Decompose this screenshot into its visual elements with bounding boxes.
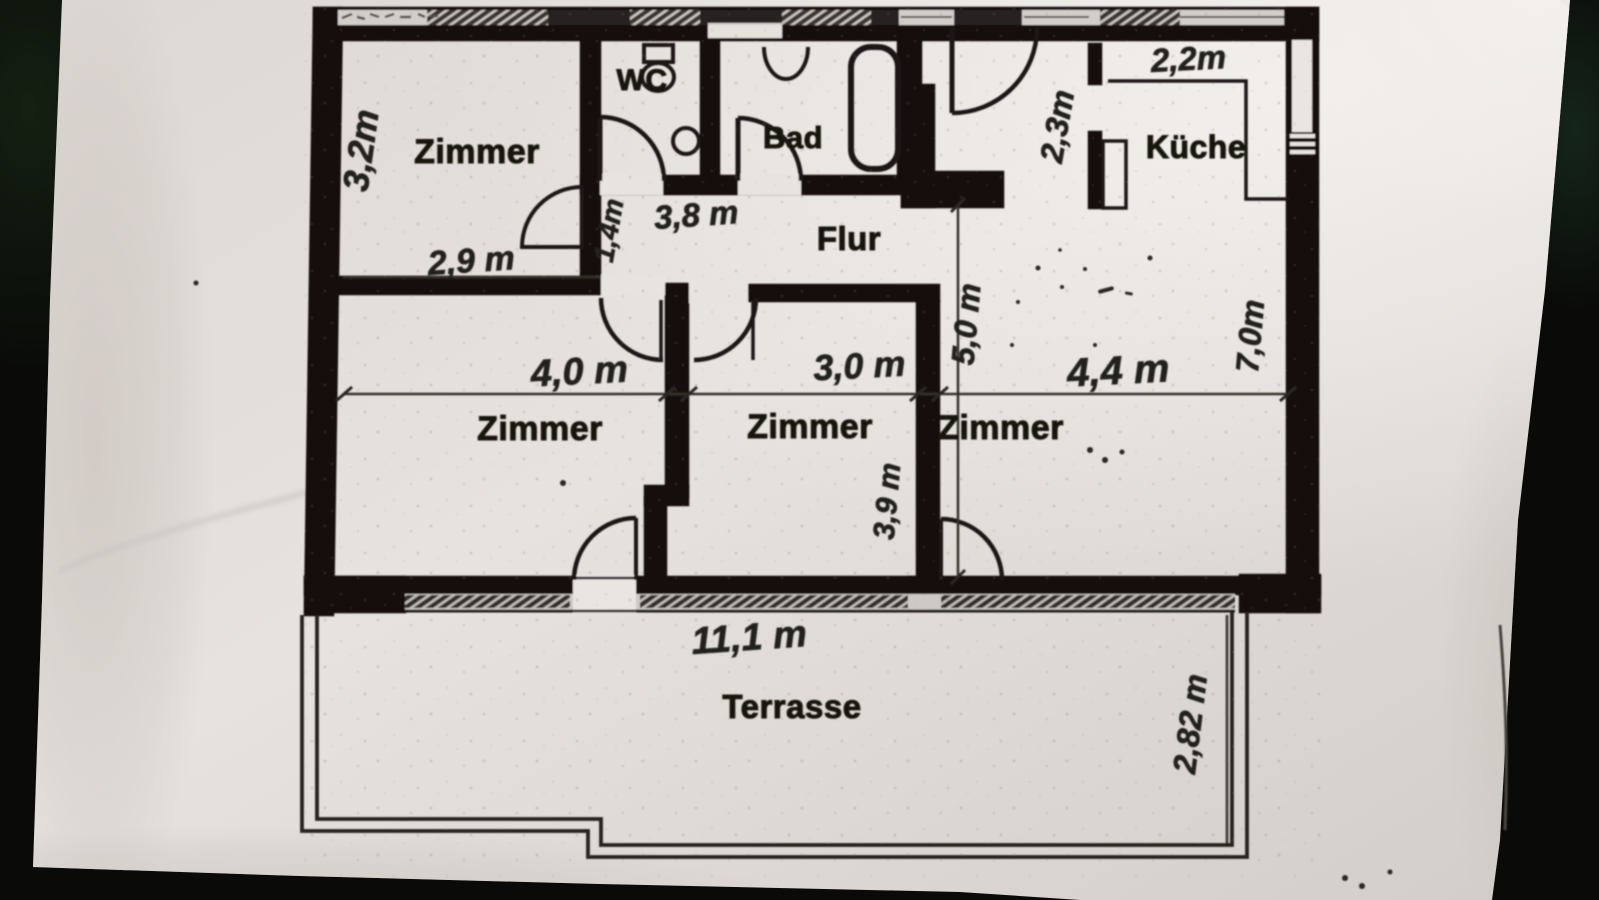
svg-text:Küche: Küche	[1146, 129, 1246, 165]
svg-text:Zimmer: Zimmer	[747, 408, 873, 446]
svg-text:Bad: Bad	[763, 120, 823, 155]
svg-text:Flur: Flur	[817, 220, 881, 257]
svg-text:Zimmer: Zimmer	[414, 133, 540, 171]
svg-text:5,0 m: 5,0 m	[945, 282, 988, 367]
svg-text:3,8 m: 3,8 m	[653, 193, 740, 236]
svg-text:3,0 m: 3,0 m	[812, 343, 906, 389]
svg-text:WC: WC	[617, 64, 668, 97]
svg-text:Terrasse: Terrasse	[722, 688, 861, 725]
svg-text:2,2m: 2,2m	[1149, 38, 1227, 79]
svg-text:Zimmer: Zimmer	[938, 409, 1064, 447]
svg-text:4,4 m: 4,4 m	[1065, 346, 1170, 395]
svg-text:4,0 m: 4,0 m	[529, 349, 629, 396]
svg-text:2,9 m: 2,9 m	[426, 239, 516, 283]
svg-text:Zimmer: Zimmer	[477, 410, 603, 448]
svg-text:3,9 m: 3,9 m	[868, 462, 908, 541]
svg-text:11,1 m: 11,1 m	[690, 613, 808, 663]
svg-text:7,0m: 7,0m	[1229, 298, 1271, 374]
